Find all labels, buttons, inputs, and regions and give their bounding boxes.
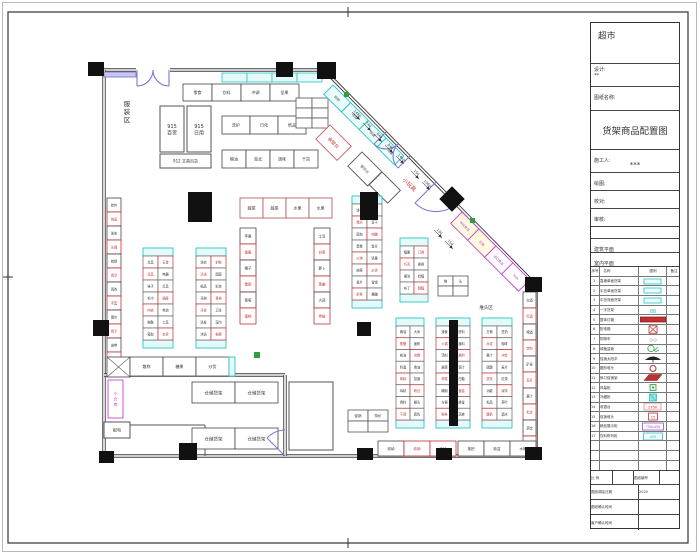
ringred-symbol-icon [640,364,666,373]
gondola-endcap [400,238,428,246]
store-title: 超市 [598,29,616,42]
shelf-label: 小玩具 [401,176,419,194]
structural-column [179,443,197,460]
svg-text:750x450: 750x450 [646,425,661,429]
shelf-label: 散称 [143,363,151,369]
shelf-group: 挂件饰品发夹头绳梳镜雨伞雨衣手套围巾帽子皮带钱包 [107,198,121,366]
shelf-group: 小仓库 [108,380,123,418]
shelf-label: 发夹 [111,230,118,235]
shelf-label: 蜜饯 [371,279,378,284]
shelf-label: 罐头 [414,400,421,405]
shelf-label: 文具 [147,259,154,264]
shelf-label: 香蕉 [245,249,252,254]
shelf-group [107,357,130,377]
boxpink-symbol-icon: 1750 [640,403,666,412]
legend-item-name: 中岛双面货架 [600,298,621,303]
partition-wall [289,382,333,450]
shelf-label: 碳酸 [486,364,493,369]
empty-cell [591,227,679,239]
tealtext-symbol-icon: 88 [640,306,666,315]
shelf-label: 箱包 [147,331,154,336]
shelf-label: 芝麻 [458,411,465,416]
shelf-group: 散称糖果炒货 [130,357,229,376]
shelf-cell [453,286,468,296]
legend-item-name: 斜口促销架 [600,375,618,380]
pill-symbol-icon [640,296,666,305]
shelf-label: 果冻 [404,273,411,278]
gondola-endcap [396,318,424,326]
shelf-cell [312,108,328,118]
legend-item-no: 12 [591,386,595,390]
shelf-label: 橙子 [245,265,252,270]
shelf-label: 炒货 [209,363,217,369]
title-block: 超市 设计: ** 图纸名称: 货架商品配置图 施工人: *** 绘图: 校对:… [590,22,680,529]
legend-item-name: 中岛单面货架 [600,288,621,293]
check-cell: 校对: [591,191,679,209]
legend-item-name: 收银台 [600,404,611,409]
shelf-group: 915日用 [187,106,211,152]
shelf-group [222,73,322,82]
shelf-label: 粮油 [230,156,238,162]
legend-row: 14收银台1750 [591,403,679,413]
gondola-endcap [396,420,424,428]
shelf-label: 功能 [486,388,493,393]
shelf-label: 护肤 [215,259,222,264]
shelf-label: 饮料 [526,345,533,350]
shelf-label: 挂面 [414,376,420,381]
shelf-label: 虾条 [356,291,363,296]
shelf-label: 彩妆 [215,283,222,288]
interior-plan-label: 室内平面 [594,260,614,267]
legend-row: 3中岛双面货架 [591,296,679,306]
shelf-label: 仓储货架 [205,435,223,442]
legend-row: 7购物车⊙⊙ [591,335,679,345]
shelf-label: 酱菜 [441,364,448,369]
arch-plan-cell: 建筑平面 [591,239,679,253]
shelf-label: 炒货 [371,267,377,272]
shelf-label: 面粉 [414,341,421,346]
structural-column [317,62,336,79]
shelf-label: 日用 [194,130,204,136]
legend-item-no: 3 [593,298,595,302]
sheet-name-cell: 图纸名称: [591,87,679,111]
shelf-label: 奶糖 [418,273,425,278]
shelf-label: 饰品 [111,216,117,221]
shelf-group: 拖把脸盆水桶 [458,441,536,456]
shelf-label: 糖果 [404,249,411,254]
shelf-label: 促销 [355,413,363,418]
shelf-label: 围巾 [111,314,117,319]
shelf-cell [438,286,453,296]
sheet-name-label: 图纸名称: [594,94,616,101]
legend-item-name: 饮料陈列柜 [600,434,618,439]
shelf-label: 麦片 [501,364,507,369]
shelf-label: 150 [447,239,455,247]
legend-row: 12风幕柜 [591,383,679,393]
legend-item-name: 一字货架 [600,308,614,313]
structural-column [436,448,452,460]
structural-column [360,192,378,220]
shelf-label: 茶饮 [486,376,493,381]
shelf-label: 卫生 [215,307,222,312]
legend-item-name: 整体灯箱 [600,317,614,322]
audit-label: 审核: [594,216,606,223]
shelf-label: 电池 [162,307,169,312]
legend-item-no: 7 [593,337,595,341]
shelf-label: 130 [436,228,444,236]
shelf-label: 插座 [162,295,169,300]
structural-column [188,192,212,222]
shelf-label: 水果 [294,205,302,211]
gondola-endcap [143,248,173,256]
redbar-symbol-icon [640,315,666,324]
shelf-group: 粮油南北调味干货 [222,150,318,168]
legend-item-no: 4 [593,308,595,312]
legend-item-no: 2 [593,289,595,293]
shelf-label: 巧克 [404,261,411,266]
boxgreen-symbol-icon [640,383,666,392]
shelf-label: 纸品 [288,122,296,128]
legend-item-name: 冷藏柜 [600,395,611,400]
legend-table: 序号名称图例备注1靠墙单面货架2中岛单面货架3中岛双面货架4一字货架885整体灯… [591,267,679,471]
legend-row: 4一字货架88 [591,306,679,316]
shelf-label: 915 [167,124,177,130]
shelf-label: 肉脯 [371,231,378,236]
shelf-label: 牙膏 [200,307,206,312]
shelf-group [296,98,328,128]
shelf-group: 912 文具百货 [160,154,211,168]
shelf-label: 仓储货架 [248,389,266,396]
shelf-label: 味精 [400,376,407,381]
builder-value: *** [591,161,679,169]
shelf-label: 拖把 [468,446,476,451]
shelf-label: 内衣 [147,307,154,312]
shelf-label: 香皂 [215,295,221,300]
legend-item-name: 购物车 [600,337,611,342]
shelf-label: 陈醋 [400,341,407,346]
shelf-label: 洗发 [200,319,207,324]
shelf-group: 土豆白菜萝卜葱姜大蒜青椒 [314,228,330,324]
shelf-label: 料酒 [400,364,407,369]
shelf-label: 粉条 [441,411,448,416]
shelf-label: 调味 [278,156,286,162]
shelf-label: 杂粮 [414,353,421,358]
shelf-label: 茶叶 [501,400,508,405]
legend-item-no: 16 [591,424,595,428]
legend-item-no: 11 [591,376,595,380]
shelf-label: 蜜桃 [245,313,252,318]
shelf-label: 梳镜 [111,258,118,263]
shelf-label: 电器 [162,271,169,276]
drawing-title-cell: 货架商品配置图 [591,111,679,150]
shelf-label: 150 [413,169,421,177]
shelf-group: 促销特价 [348,410,388,432]
shelf-label: 绿茶 [501,388,508,393]
shelf-label: 雪梨 [245,281,252,286]
shelf-label: 大米 [414,329,421,334]
shelf-label: 日化 [260,122,268,128]
shelf-label: 酱料 [458,353,465,358]
shelf-group: 配电 [104,422,130,438]
legend-item-no: 8 [593,347,595,351]
structural-column [276,62,293,77]
shelf-label: 香料 [400,400,407,405]
legend-item-name: 配电箱 [600,327,611,332]
shelf-label: 五金 [162,259,169,264]
dimension-callout: 150 [444,238,456,250]
shelf-group: 仓储货架仓储货架 [192,428,278,449]
shelf-label: 青椒 [319,313,327,318]
shelf-label: 萝卜 [319,265,327,270]
door-swing [137,70,169,86]
shelf-label: 毛巾 [147,295,153,300]
svg-text:15: 15 [651,415,656,419]
shelf-label: 大蒜 [319,297,327,302]
shelf-label: 葱姜 [319,281,327,286]
shelf-cell [296,98,312,108]
shelf-label: 收纳 [388,446,396,451]
shelf-label: 干货 [302,156,310,162]
draw-date-value: 2020 [639,490,648,494]
legend-row: 13冷藏柜 [591,393,679,403]
shelf-cell [222,73,247,82]
shelf-label: 食油 [414,364,420,369]
shelf-label: 蔬菜 [271,205,279,211]
shelf-label: 速食 [441,329,448,334]
dimension-callout: 130 [433,227,445,239]
boxcyanol-symbol-icon: 450 [640,432,666,441]
shelf-label: 汤料 [441,353,448,358]
shelf-label: 腌制 [441,388,447,393]
shelf-group: 方便水饮果汁碳酸茶饮功能乳品酸奶豆奶咖啡冲饮麦片红茶绿茶茶叶酒水 [482,318,512,428]
shelf-label: 水果 [317,205,325,211]
shelf-label: 坚果 [371,255,378,260]
legend-item-no: 9 [593,357,595,361]
legend-item-no: 15 [591,415,595,419]
shelf-label: 帽子 [111,328,118,333]
shelf-label: 酥糖 [418,285,425,290]
structural-column [357,448,373,460]
green-marker [344,92,349,97]
legend-item-no: 6 [593,327,595,331]
shelf-group: 文具玩具袜子毛巾内衣拖鞋箱包五金电器灯具插座电池工具杂货 [143,248,173,348]
structural-column [88,62,104,76]
legend-row: 15促销堆头15 [591,412,679,422]
structural-column [525,277,542,292]
shelf-label: 薯片 [356,279,362,284]
svg-text:1750: 1750 [648,406,658,410]
svg-text:⊙⊙: ⊙⊙ [649,338,657,343]
shelf-label: 乳饮 [526,409,533,414]
structural-column [93,320,109,336]
shelf-label: 红酒 [526,313,533,318]
shelf-label: 曲奇 [356,267,363,272]
shelf-label: 南北 [254,156,262,162]
legend-row [591,451,679,461]
redxbox-symbol-icon [640,325,666,334]
shelf-group: 仓储货架仓储货架 [192,382,278,403]
shelf-group: 915百货 [160,106,184,152]
shelf-label: 零食 [194,89,202,95]
shelf-label: 头 [459,278,463,283]
shelf-label: 鸡精 [400,388,407,393]
shelf-label: 玩具 [147,271,154,276]
legend-item-name: 促销堆头 [600,414,614,419]
client-confirm-label: 客户确认时间 [591,520,612,525]
shelf-label: 苏打 [526,377,533,382]
gondola-endcap [196,340,226,348]
shelf-label: 苹果 [245,233,252,238]
shelf-label: 挂件 [111,202,118,207]
shelf-label: 乳品 [486,400,492,405]
shelf-label: 调汁 [458,364,465,369]
shelf-label: 棒棒 [418,261,425,266]
shelf-label: 特价 [375,413,383,418]
legend-item-no: 17 [591,434,595,438]
shelf-label: 百货 [167,129,177,136]
legend-header-label: 备注 [671,269,678,274]
shelf-group [104,72,136,77]
builder-cell: 施工人: *** [591,150,679,173]
store-title-cell: 超市 [591,23,679,64]
shelf-label: 火锅 [441,341,447,346]
legend-item-no: 13 [591,395,595,399]
shelf-group: 零食饮料冲调坚果 [183,84,299,101]
shelf-label: 小 [114,390,118,396]
legend-item-no: 1 [593,279,595,283]
area-label: 服装区 [124,100,131,124]
shelf-cell [368,421,388,432]
shelf-label: 矿泉 [526,361,533,366]
pill-symbol-icon [640,286,666,295]
legend-row: 1靠墙单面货架 [591,277,679,287]
green-marker [254,352,260,358]
boxpurple-symbol-icon: 750x450 [640,422,666,431]
legend-row [591,441,679,451]
shelf-label: 干调 [400,411,406,416]
shelf-label: 葡萄 [245,297,252,302]
shelf-label: 仓储货架 [205,389,223,396]
shelf-cell [348,421,368,432]
parared-symbol-icon [640,374,666,383]
shelf-label: 雨伞 [111,272,118,277]
legend-item-no: 10 [591,366,595,370]
shelf-group [229,357,235,376]
green-marker [470,218,475,223]
shelf-cell [296,118,312,128]
design-label: 设计: [594,67,606,73]
shelf-group: 蔬菜蔬菜水果水果 [240,198,332,218]
shelf-label: 面包 [356,231,363,236]
confirm-label: 图纸确认时间 [591,505,612,510]
design-cell: 设计: ** [591,64,679,87]
structural-column [525,447,542,460]
gondola-endcap [400,294,428,302]
drawing-title: 货架商品配置图 [602,123,668,136]
shelf-label: 堆 [444,278,448,283]
diagonal-shelf-block: 收银台 [316,125,351,160]
shelf-group: 糖果巧克果冻布丁口香棒棒奶糖酥糖 [400,238,428,302]
draw-date-label: 图纸调绘日期 [591,490,612,495]
legend-item-no: 14 [591,405,595,409]
shelf-cell [296,108,312,118]
svg-text:450: 450 [650,435,656,439]
shelf-group: 洗衣清洁纸品牙刷牙膏洗发沐浴护肤面膜彩妆香皂卫生湿巾棉柔 [196,248,226,348]
shelf-cell [312,98,328,108]
shelf-label: 土豆 [319,233,327,238]
shelf-label: 袜子 [147,283,154,288]
shelf-label: 收纳 [414,446,422,451]
shelf-block [229,357,235,376]
shelf-label: 纸品 [200,283,206,288]
plant-symbol-icon [640,345,666,354]
shelf-label: 酒水 [501,411,508,416]
shelf-label: 杂货 [162,331,168,336]
legend-row: 11斜口促销架 [591,374,679,384]
shelf-group: 收银台 [316,125,351,160]
shelf-group: 苹果香蕉橙子雪梨葡萄蜜桃 [240,228,256,324]
shelf-label: 咖啡 [501,341,508,346]
shelf-label: 面膜 [215,271,222,276]
shelf-label: 皮带 [111,342,118,347]
shelf-label: 仓储货架 [248,435,266,442]
shelf-label: 白酒 [526,297,533,302]
draw-cell: 绘图: [591,173,679,191]
shelf-label: 豆奶 [501,329,507,334]
legend-header-label: 名称 [603,269,610,274]
shelf-label: 脸盆 [494,446,502,451]
shelf-group: 洗护日化纸品 [222,116,306,134]
shelf-label: 库 [114,401,118,407]
legend-symbol-empty [640,461,666,470]
legend-item-no: 5 [593,318,595,322]
graytext-symbol-icon: ⊙⊙ [640,335,666,344]
shelf-label: 沙琪 [356,255,363,260]
pill-symbol-icon [640,277,666,286]
shelf-label: 棉柔 [215,331,222,336]
shelf-label: 蛋卷 [356,243,363,248]
shelf-label: 915 [194,124,204,130]
gondola-endcap [196,248,226,256]
shelf-group: 堆头 [438,276,468,296]
scale-label: 比 例 [591,475,599,480]
shelf-label: 仓 [114,396,118,402]
shelf-label: 布丁 [404,285,410,290]
shelf-label: 蚝油 [400,353,406,358]
legend-row: 2中岛单面货架 [591,286,679,296]
shelf-label: 茶饮 [526,425,533,430]
structural-column [99,451,114,463]
draw-date-row: 图纸调绘日期 2020 [591,485,679,500]
legend-row: 9促销太阳伞 [591,354,679,364]
shelf-label: 酸奶 [486,411,492,416]
structural-column [357,322,371,336]
shelf-label: 堆头区 [479,304,493,311]
interior-plan-cell: 室内平面 [591,253,679,267]
shelf-label: 牙刷 [200,295,206,300]
audit-cell: 审核: [591,209,679,227]
shelf-label: 配电 [113,427,121,433]
shelf-label: 果脯 [371,291,378,296]
check-label: 校对: [594,198,606,205]
shelf-label: 腐乳 [414,411,421,416]
shelf-label: 红茶 [501,376,508,381]
shelf-label: 榨菜 [441,376,448,381]
shelf-label: 手套 [111,300,118,305]
legend-item-name: 风幕柜 [600,385,611,390]
shelf-label: 912 文具百货 [173,158,198,164]
gondola-endcap [482,420,512,428]
